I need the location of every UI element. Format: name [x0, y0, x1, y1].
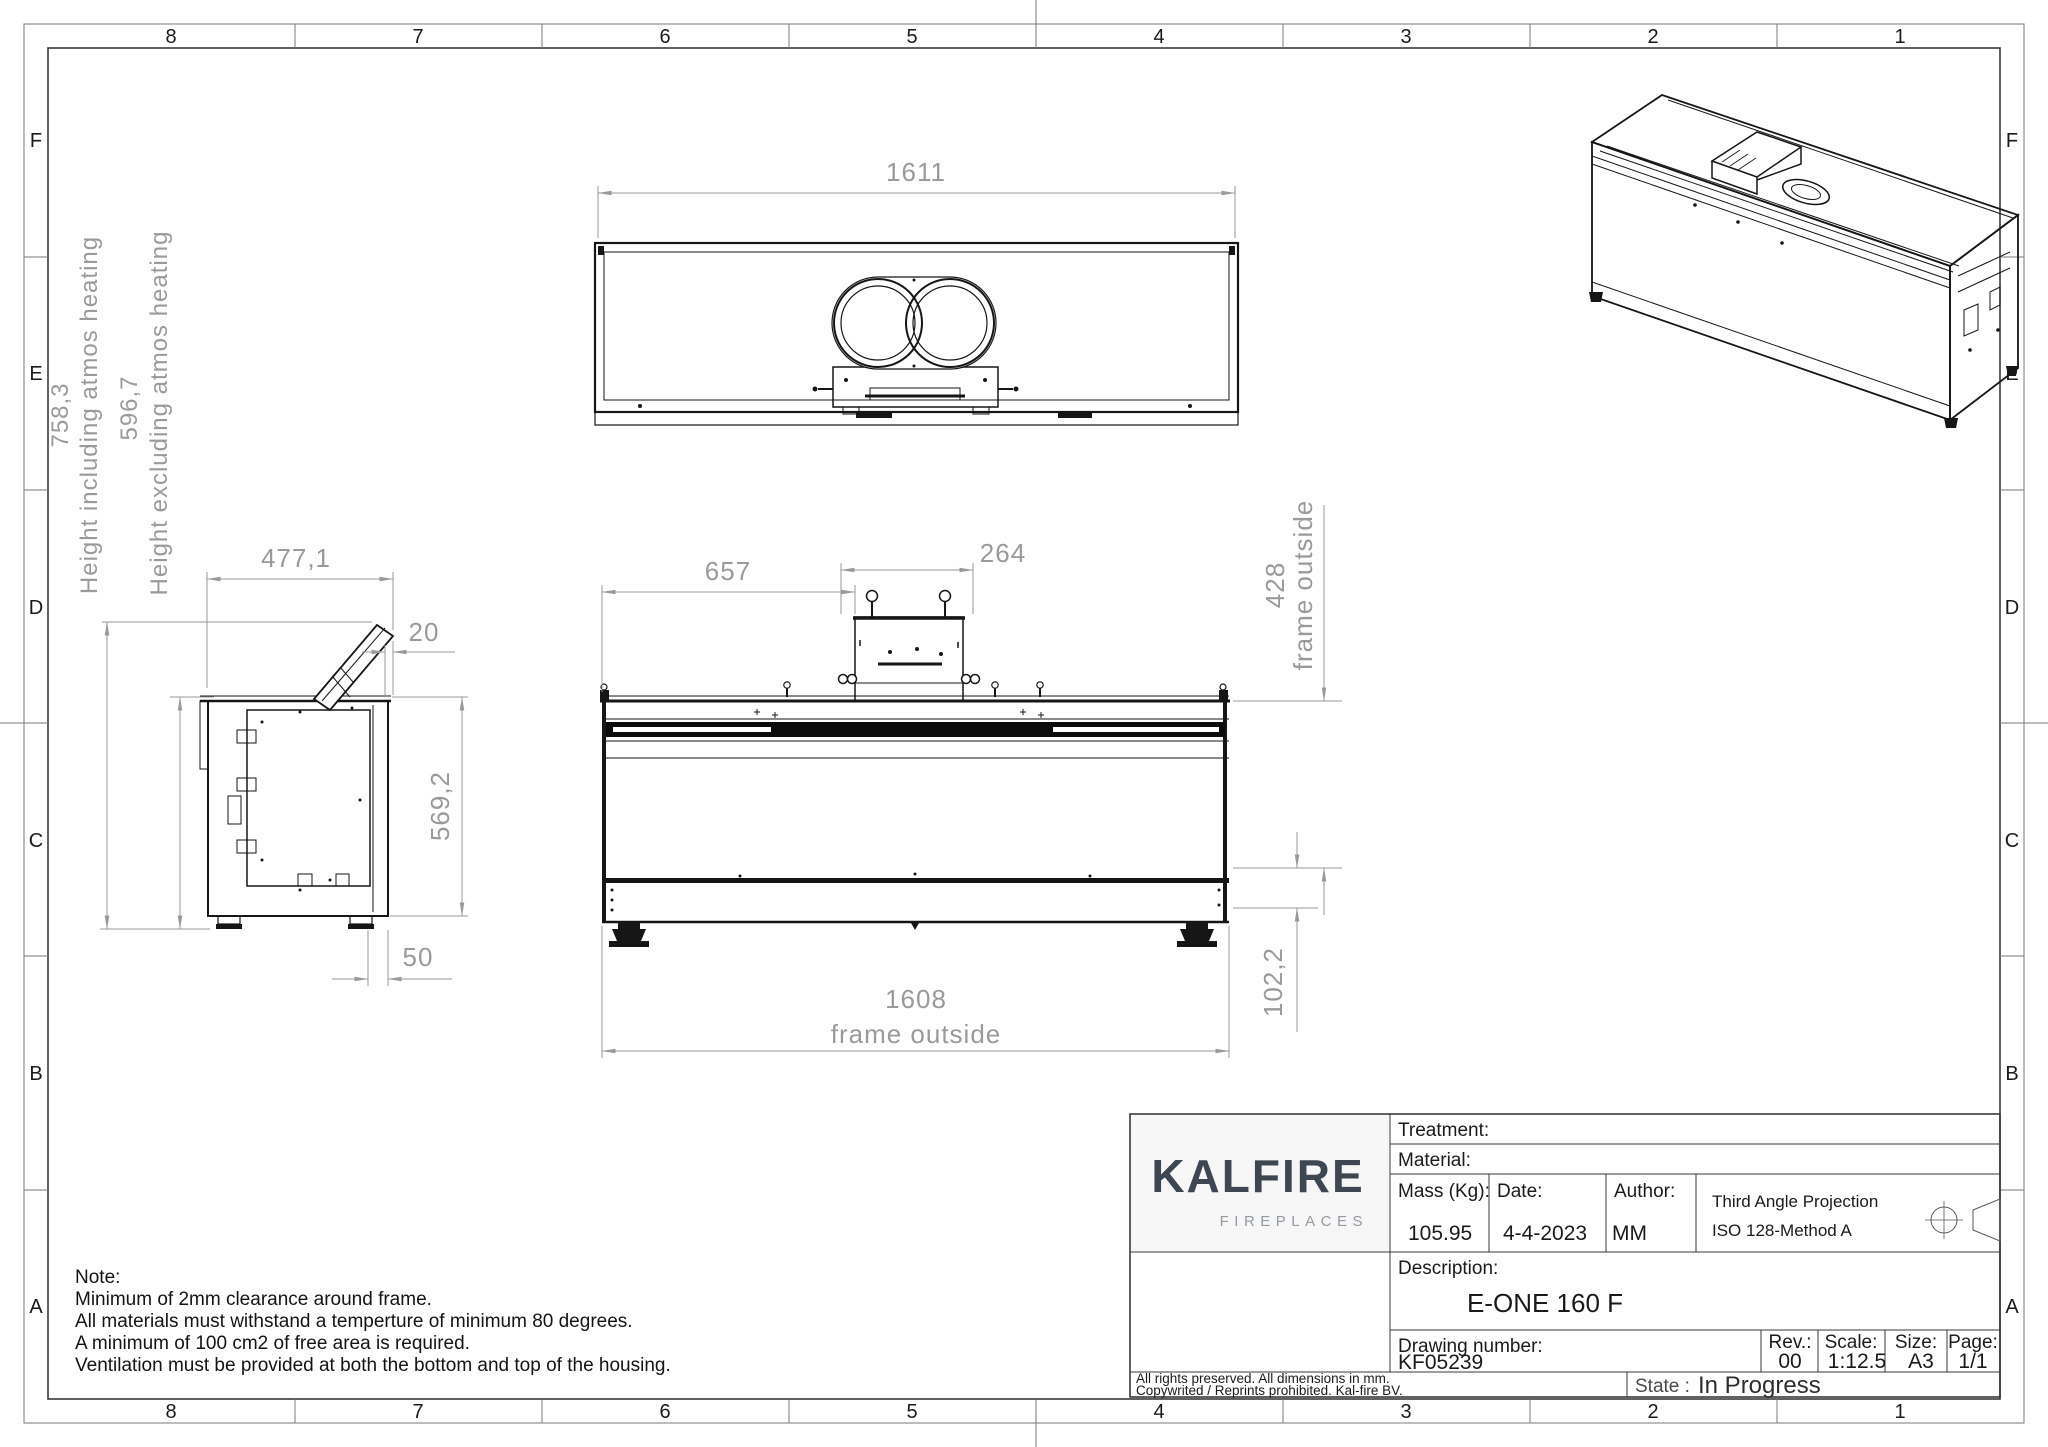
grid-row-left: A — [29, 1296, 43, 1318]
grid-row-right: D — [2005, 597, 2019, 619]
grid-row-right: F — [2006, 130, 2018, 152]
third-angle-projection-icon — [1925, 1199, 2000, 1241]
top-view: 1611 — [595, 157, 1238, 425]
date-label: Date: — [1497, 1181, 1542, 1202]
dim-height-including-label: Height including atmos heating — [76, 236, 103, 594]
dim-height-excluding-label: Height excluding atmos heating — [146, 231, 173, 596]
description-label: Description: — [1398, 1258, 1498, 1279]
grid-col-bottom: 4 — [1153, 1401, 1164, 1423]
page-value: 1/1 — [1958, 1350, 1987, 1373]
grid-col-bottom: 1 — [1894, 1401, 1905, 1423]
kalfire-logo: KALFIRE — [1151, 1150, 1364, 1202]
dim-front-plinth-height: 102,2 — [1258, 947, 1288, 1017]
dim-side-inner-height: 569,2 — [425, 771, 455, 841]
rev-value: 00 — [1778, 1350, 1801, 1373]
mass-label: Mass (Kg): — [1398, 1181, 1490, 1202]
front-view: 657 264 428 frame outside 102,2 1608 fra… — [600, 500, 1342, 1058]
grid-row-left: C — [29, 830, 43, 852]
date-value: 4-4-2023 — [1503, 1222, 1587, 1245]
dim-side-foot-offset: 50 — [403, 942, 434, 972]
grid-col-bottom: 7 — [412, 1401, 423, 1423]
grid-col-top: 2 — [1647, 26, 1658, 48]
state-value: In Progress — [1698, 1372, 1821, 1399]
treatment-label: Treatment: — [1398, 1120, 1489, 1141]
grid-col-top: 7 — [412, 26, 423, 48]
notes: Note: Minimum of 2mm clearance around fr… — [75, 1267, 671, 1376]
projection-line2: ISO 128-Method A — [1712, 1221, 1853, 1240]
grid-col-top: 6 — [659, 26, 670, 48]
grid-row-right: A — [2005, 1296, 2019, 1318]
notes-title: Note: — [75, 1267, 120, 1288]
copyright-line2: Copywrited / Reprints prohibited. Kal-fi… — [1136, 1383, 1403, 1398]
author-label: Author: — [1614, 1181, 1675, 1202]
drawing-number-value: KF05239 — [1398, 1351, 1483, 1374]
grid-row-left: F — [30, 130, 42, 152]
dim-front-frame-height-label: frame outside — [1288, 500, 1318, 671]
grid-col-bottom: 3 — [1400, 1401, 1411, 1423]
isometric-view — [1589, 95, 2018, 428]
grid-row-left: D — [29, 597, 43, 619]
mass-value: 105.95 — [1408, 1222, 1472, 1245]
dim-top-width: 1611 — [886, 157, 946, 187]
side-view: 477,1 20 569,2 50 758,3 Height including… — [47, 231, 468, 986]
dim-side-depth: 477,1 — [261, 543, 331, 573]
drawing-sheet: 8 7 6 5 4 3 2 1 8 7 6 5 4 3 2 1 F E D C … — [0, 0, 2048, 1447]
dim-height-excluding: 596,7 — [116, 375, 143, 440]
material-label: Material: — [1398, 1150, 1471, 1171]
grid-col-bottom: 6 — [659, 1401, 670, 1423]
note-line: All materials must withstand a tempertur… — [75, 1311, 633, 1332]
note-line: A minimum of 100 cm2 of free area is req… — [75, 1333, 470, 1354]
dim-side-flap: 20 — [409, 617, 440, 647]
state-label: State : — [1635, 1376, 1690, 1397]
grid-col-top: 5 — [906, 26, 917, 48]
author-value: MM — [1612, 1222, 1647, 1245]
grid-col-top: 3 — [1400, 26, 1411, 48]
projection-line1: Third Angle Projection — [1712, 1192, 1878, 1211]
dim-front-frame-width-label: frame outside — [831, 1019, 1002, 1049]
grid-col-bottom: 5 — [906, 1401, 917, 1423]
title-block: KALFIRE FIREPLACES Treatment: Material: … — [1130, 1114, 2000, 1399]
kalfire-tagline: FIREPLACES — [1220, 1213, 1368, 1230]
scale-value: 1:12.5 — [1828, 1350, 1886, 1373]
grid-col-top: 8 — [165, 26, 176, 48]
size-value: A3 — [1908, 1350, 1934, 1373]
note-line: Ventilation must be provided at both the… — [75, 1355, 671, 1376]
grid-col-top: 4 — [1153, 26, 1164, 48]
dim-height-including: 758,3 — [47, 382, 74, 447]
grid-row-left: E — [29, 363, 42, 385]
grid-row-left: B — [29, 1063, 42, 1085]
dim-front-box-width: 264 — [980, 538, 1026, 568]
grid-row-right: C — [2005, 830, 2019, 852]
dim-front-offset-left: 657 — [705, 556, 751, 586]
grid-col-bottom: 2 — [1647, 1401, 1658, 1423]
dim-front-frame-width: 1608 — [885, 984, 947, 1014]
grid-row-right: B — [2005, 1063, 2018, 1085]
drawing-canvas: 8 7 6 5 4 3 2 1 8 7 6 5 4 3 2 1 F E D C … — [0, 0, 2048, 1447]
grid-col-bottom: 8 — [165, 1401, 176, 1423]
description-value: E-ONE 160 F — [1467, 1288, 1623, 1318]
dim-front-frame-height: 428 — [1260, 562, 1290, 608]
note-line: Minimum of 2mm clearance around frame. — [75, 1289, 432, 1310]
grid-col-top: 1 — [1894, 26, 1905, 48]
